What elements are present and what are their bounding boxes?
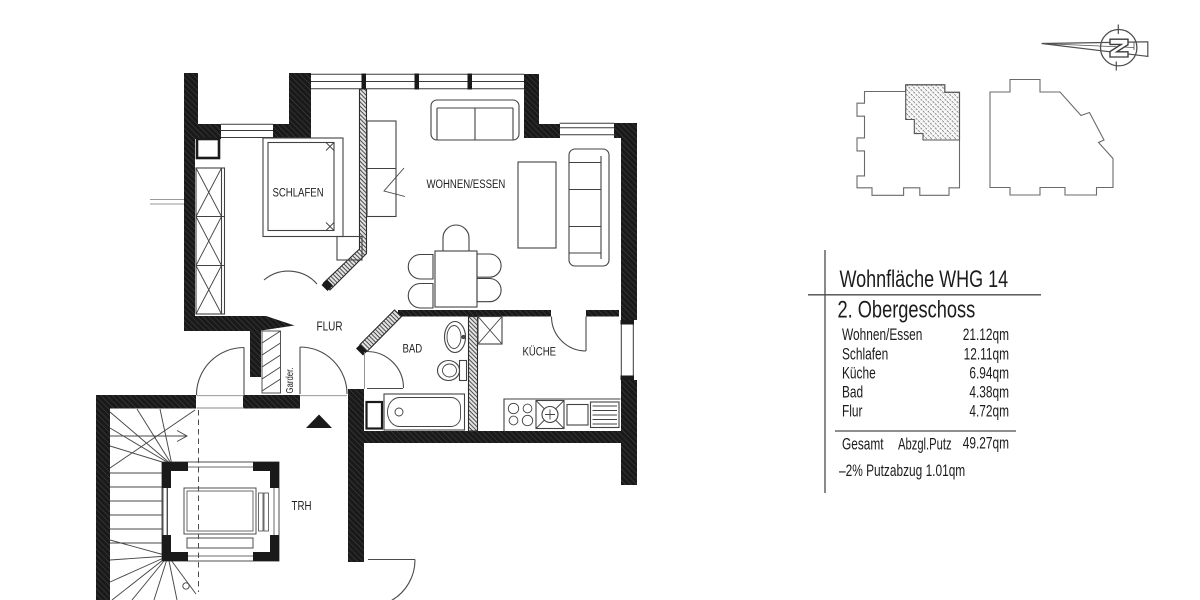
svg-text:SCHLAFEN: SCHLAFEN	[273, 186, 324, 199]
svg-text:49.27qm: 49.27qm	[963, 435, 1009, 454]
svg-text:4.38qm: 4.38qm	[969, 384, 1009, 403]
svg-text:Schlafen: Schlafen	[842, 346, 888, 365]
svg-text:2. Obergeschoss: 2. Obergeschoss	[838, 296, 976, 323]
svg-text:TRH: TRH	[292, 500, 312, 513]
svg-text:6.94qm: 6.94qm	[969, 365, 1009, 384]
svg-text:Abzgl.Putz: Abzgl.Putz	[898, 435, 952, 454]
svg-text:Bad: Bad	[842, 384, 863, 403]
svg-text:4.72qm: 4.72qm	[969, 403, 1009, 422]
svg-text:Flur: Flur	[842, 403, 863, 422]
svg-text:Wohnfläche WHG 14: Wohnfläche WHG 14	[840, 267, 1009, 293]
svg-text:Garder.: Garder.	[284, 368, 295, 394]
svg-text:BAD: BAD	[403, 342, 423, 355]
svg-text:21.12qm: 21.12qm	[963, 326, 1009, 345]
svg-text:Gesamt: Gesamt	[842, 436, 884, 455]
svg-text:Wohnen/Essen: Wohnen/Essen	[842, 326, 922, 345]
svg-text:KÜCHE: KÜCHE	[523, 345, 557, 358]
svg-text:WOHNEN/ESSEN: WOHNEN/ESSEN	[427, 178, 506, 191]
svg-text:FLUR: FLUR	[317, 320, 343, 333]
svg-text:12.11qm: 12.11qm	[964, 346, 1009, 365]
svg-text:–2% Putzabzug 1.01qm: –2% Putzabzug 1.01qm	[839, 462, 965, 481]
svg-text:Küche: Küche	[842, 365, 876, 384]
